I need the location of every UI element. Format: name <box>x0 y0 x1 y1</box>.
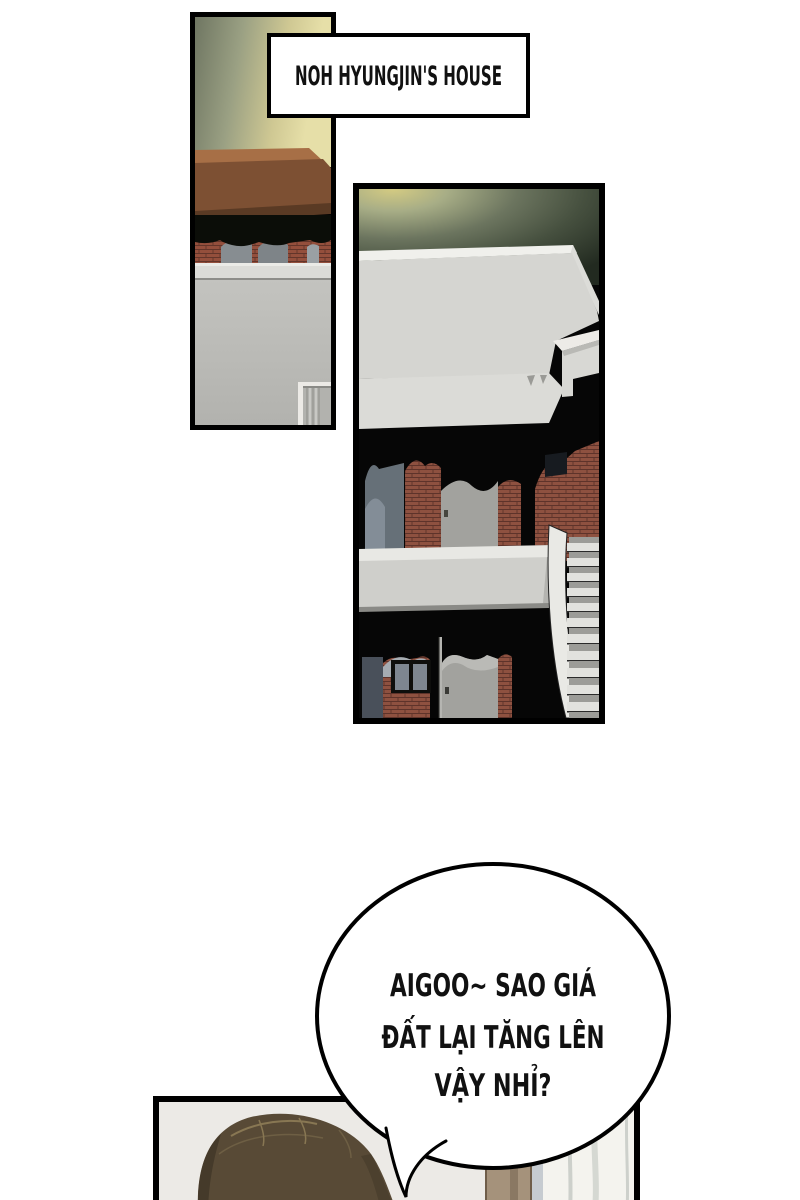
caption-text: NOH HYUNGJIN'S HOUSE <box>295 61 502 92</box>
speech-line-2: ĐẤT LẠI TĂNG LÊN <box>382 1016 605 1056</box>
brick-ledge <box>195 215 331 263</box>
corner-window <box>298 382 331 425</box>
speech-bubble: AIGOO~ SAO GIÁ ĐẤT LẠI TĂNG LÊN VẬY NHỈ? <box>300 850 700 1200</box>
caption-box: NOH HYUNGJIN'S HOUSE <box>267 33 530 118</box>
speech-line-1: AIGOO~ SAO GIÁ <box>390 968 596 1004</box>
speech-bubble-body <box>317 864 669 1168</box>
roof-eave <box>195 148 331 222</box>
speech-line-3: VẬY NHỈ? <box>435 1065 552 1104</box>
comic-page: NOH HYUNGJIN'S HOUSE <box>0 0 800 1200</box>
balcony-slab <box>359 545 553 612</box>
panel-exterior-main <box>353 183 605 724</box>
panel-exterior-main-art <box>359 189 599 718</box>
